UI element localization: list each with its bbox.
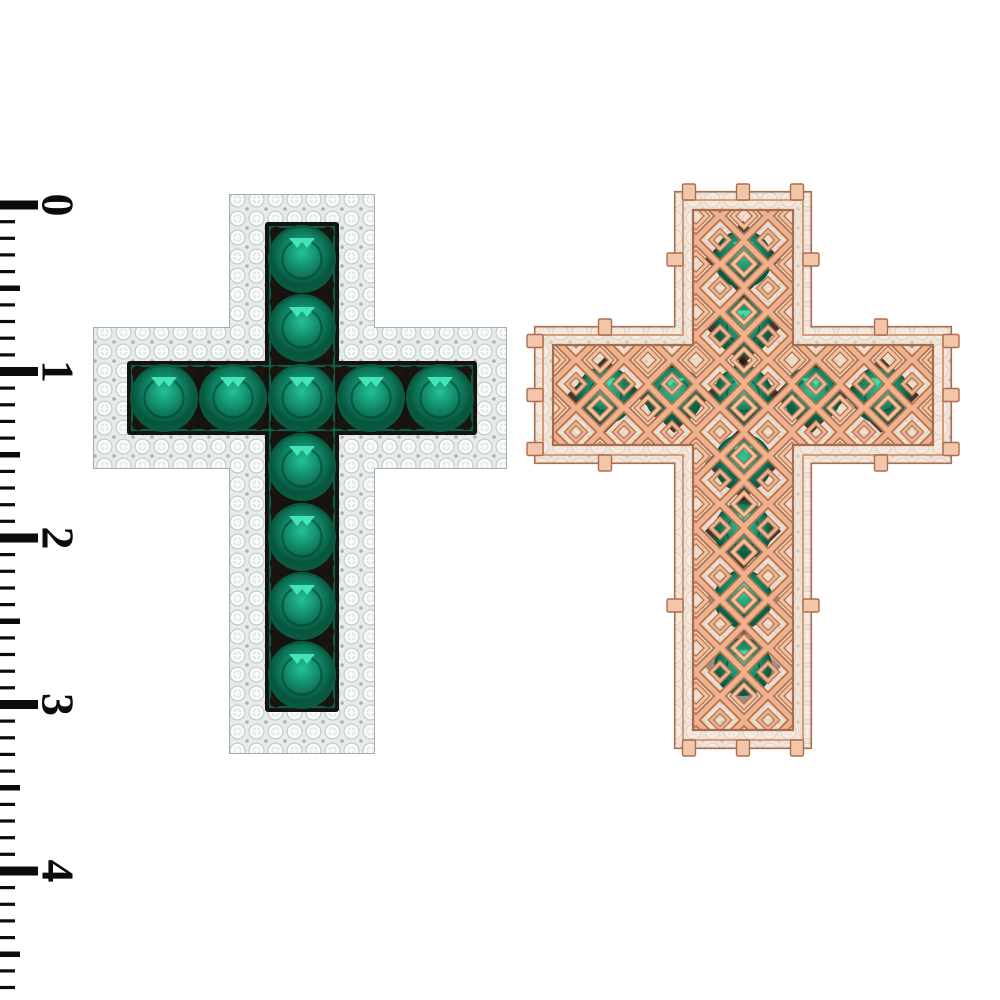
frame-tab	[527, 443, 543, 456]
ruler-tick-major	[0, 867, 38, 876]
ruler-tick-minor	[0, 753, 15, 756]
ruler-tick-minor	[0, 686, 15, 689]
ruler-tick-minor	[0, 320, 15, 323]
frame-tab	[943, 335, 959, 348]
frame-tab	[737, 184, 750, 200]
emerald-stone	[202, 367, 265, 430]
ruler-tick-half	[0, 952, 20, 958]
frame-tab	[737, 740, 750, 756]
ruler-tick-minor	[0, 770, 15, 773]
ruler-tick-minor	[0, 220, 15, 223]
back-cross-pendant	[527, 184, 959, 756]
openwork-interior	[535, 192, 951, 748]
frame-tab	[683, 740, 696, 756]
ruler-tick-minor	[0, 653, 15, 656]
emerald-stone	[271, 436, 334, 499]
ruler-tick-minor	[0, 836, 15, 839]
ruler-tick-minor	[0, 387, 15, 390]
ruler-tick-major	[0, 201, 38, 210]
front-cross-pendant	[94, 195, 506, 753]
ruler-tick-minor	[0, 586, 15, 589]
ruler-tick-minor	[0, 470, 15, 473]
ruler-number: 4	[33, 860, 84, 883]
ruler-tick-major	[0, 700, 38, 709]
ruler-number: 2	[33, 527, 84, 550]
frame-tab	[527, 389, 543, 402]
emerald-stone	[271, 228, 334, 291]
frame-tab	[943, 389, 959, 402]
ruler-tick-minor	[0, 886, 15, 889]
ruler-tick-major	[0, 367, 38, 376]
ruler: 01234	[0, 194, 84, 990]
emerald-stone	[271, 644, 334, 707]
frame-tab	[667, 599, 683, 612]
ruler-tick-minor	[0, 720, 15, 723]
frame-tab	[667, 253, 683, 266]
filigree-lattice	[535, 192, 951, 748]
ruler-tick-minor	[0, 437, 15, 440]
ruler-tick-minor	[0, 803, 15, 806]
ruler-tick-minor	[0, 337, 15, 340]
frame-tab	[791, 184, 804, 200]
emerald-stone	[340, 367, 403, 430]
ruler-tick-minor	[0, 969, 15, 972]
frame-tab	[527, 335, 543, 348]
ruler-tick-half	[0, 619, 20, 625]
frame-tab	[599, 319, 612, 335]
emerald-stone	[271, 367, 334, 430]
frame-tab	[803, 253, 819, 266]
ruler-number: 3	[33, 693, 84, 716]
ruler-tick-half	[0, 452, 20, 458]
ruler-tick-minor	[0, 636, 15, 639]
ruler-tick-minor	[0, 670, 15, 673]
ruler-tick-minor	[0, 736, 15, 739]
ruler-number: 0	[33, 194, 84, 217]
ruler-tick-minor	[0, 270, 15, 273]
emerald-stone	[133, 367, 196, 430]
frame-tab	[875, 455, 888, 471]
frame-tab	[803, 599, 819, 612]
ruler-tick-minor	[0, 853, 15, 856]
frame-tab	[943, 443, 959, 456]
emerald-stone	[409, 367, 472, 430]
ruler-tick-minor	[0, 520, 15, 523]
frame-tab	[599, 455, 612, 471]
ruler-tick-minor	[0, 403, 15, 406]
ruler-tick-minor	[0, 819, 15, 822]
scene-canvas: 01234	[0, 0, 1000, 1000]
ruler-tick-minor	[0, 420, 15, 423]
product-image: 01234	[0, 0, 1000, 1000]
ruler-tick-minor	[0, 553, 15, 556]
ruler-tick-minor	[0, 903, 15, 906]
emerald-stone	[271, 506, 334, 569]
ruler-tick-half	[0, 286, 20, 292]
ruler-tick-major	[0, 534, 38, 543]
ruler-tick-minor	[0, 353, 15, 356]
ruler-tick-minor	[0, 986, 15, 989]
emerald-stone	[271, 297, 334, 360]
frame-tab	[791, 740, 804, 756]
ruler-number: 1	[33, 360, 84, 383]
ruler-tick-minor	[0, 936, 15, 939]
ruler-tick-minor	[0, 603, 15, 606]
ruler-tick-minor	[0, 303, 15, 306]
frame-tab	[875, 319, 888, 335]
ruler-tick-minor	[0, 237, 15, 240]
ruler-tick-minor	[0, 503, 15, 506]
ruler-tick-minor	[0, 919, 15, 922]
emerald-stone	[271, 575, 334, 638]
frame-tab	[683, 184, 696, 200]
ruler-tick-minor	[0, 253, 15, 256]
ruler-tick-minor	[0, 570, 15, 573]
ruler-tick-half	[0, 785, 20, 791]
ruler-tick-minor	[0, 486, 15, 489]
